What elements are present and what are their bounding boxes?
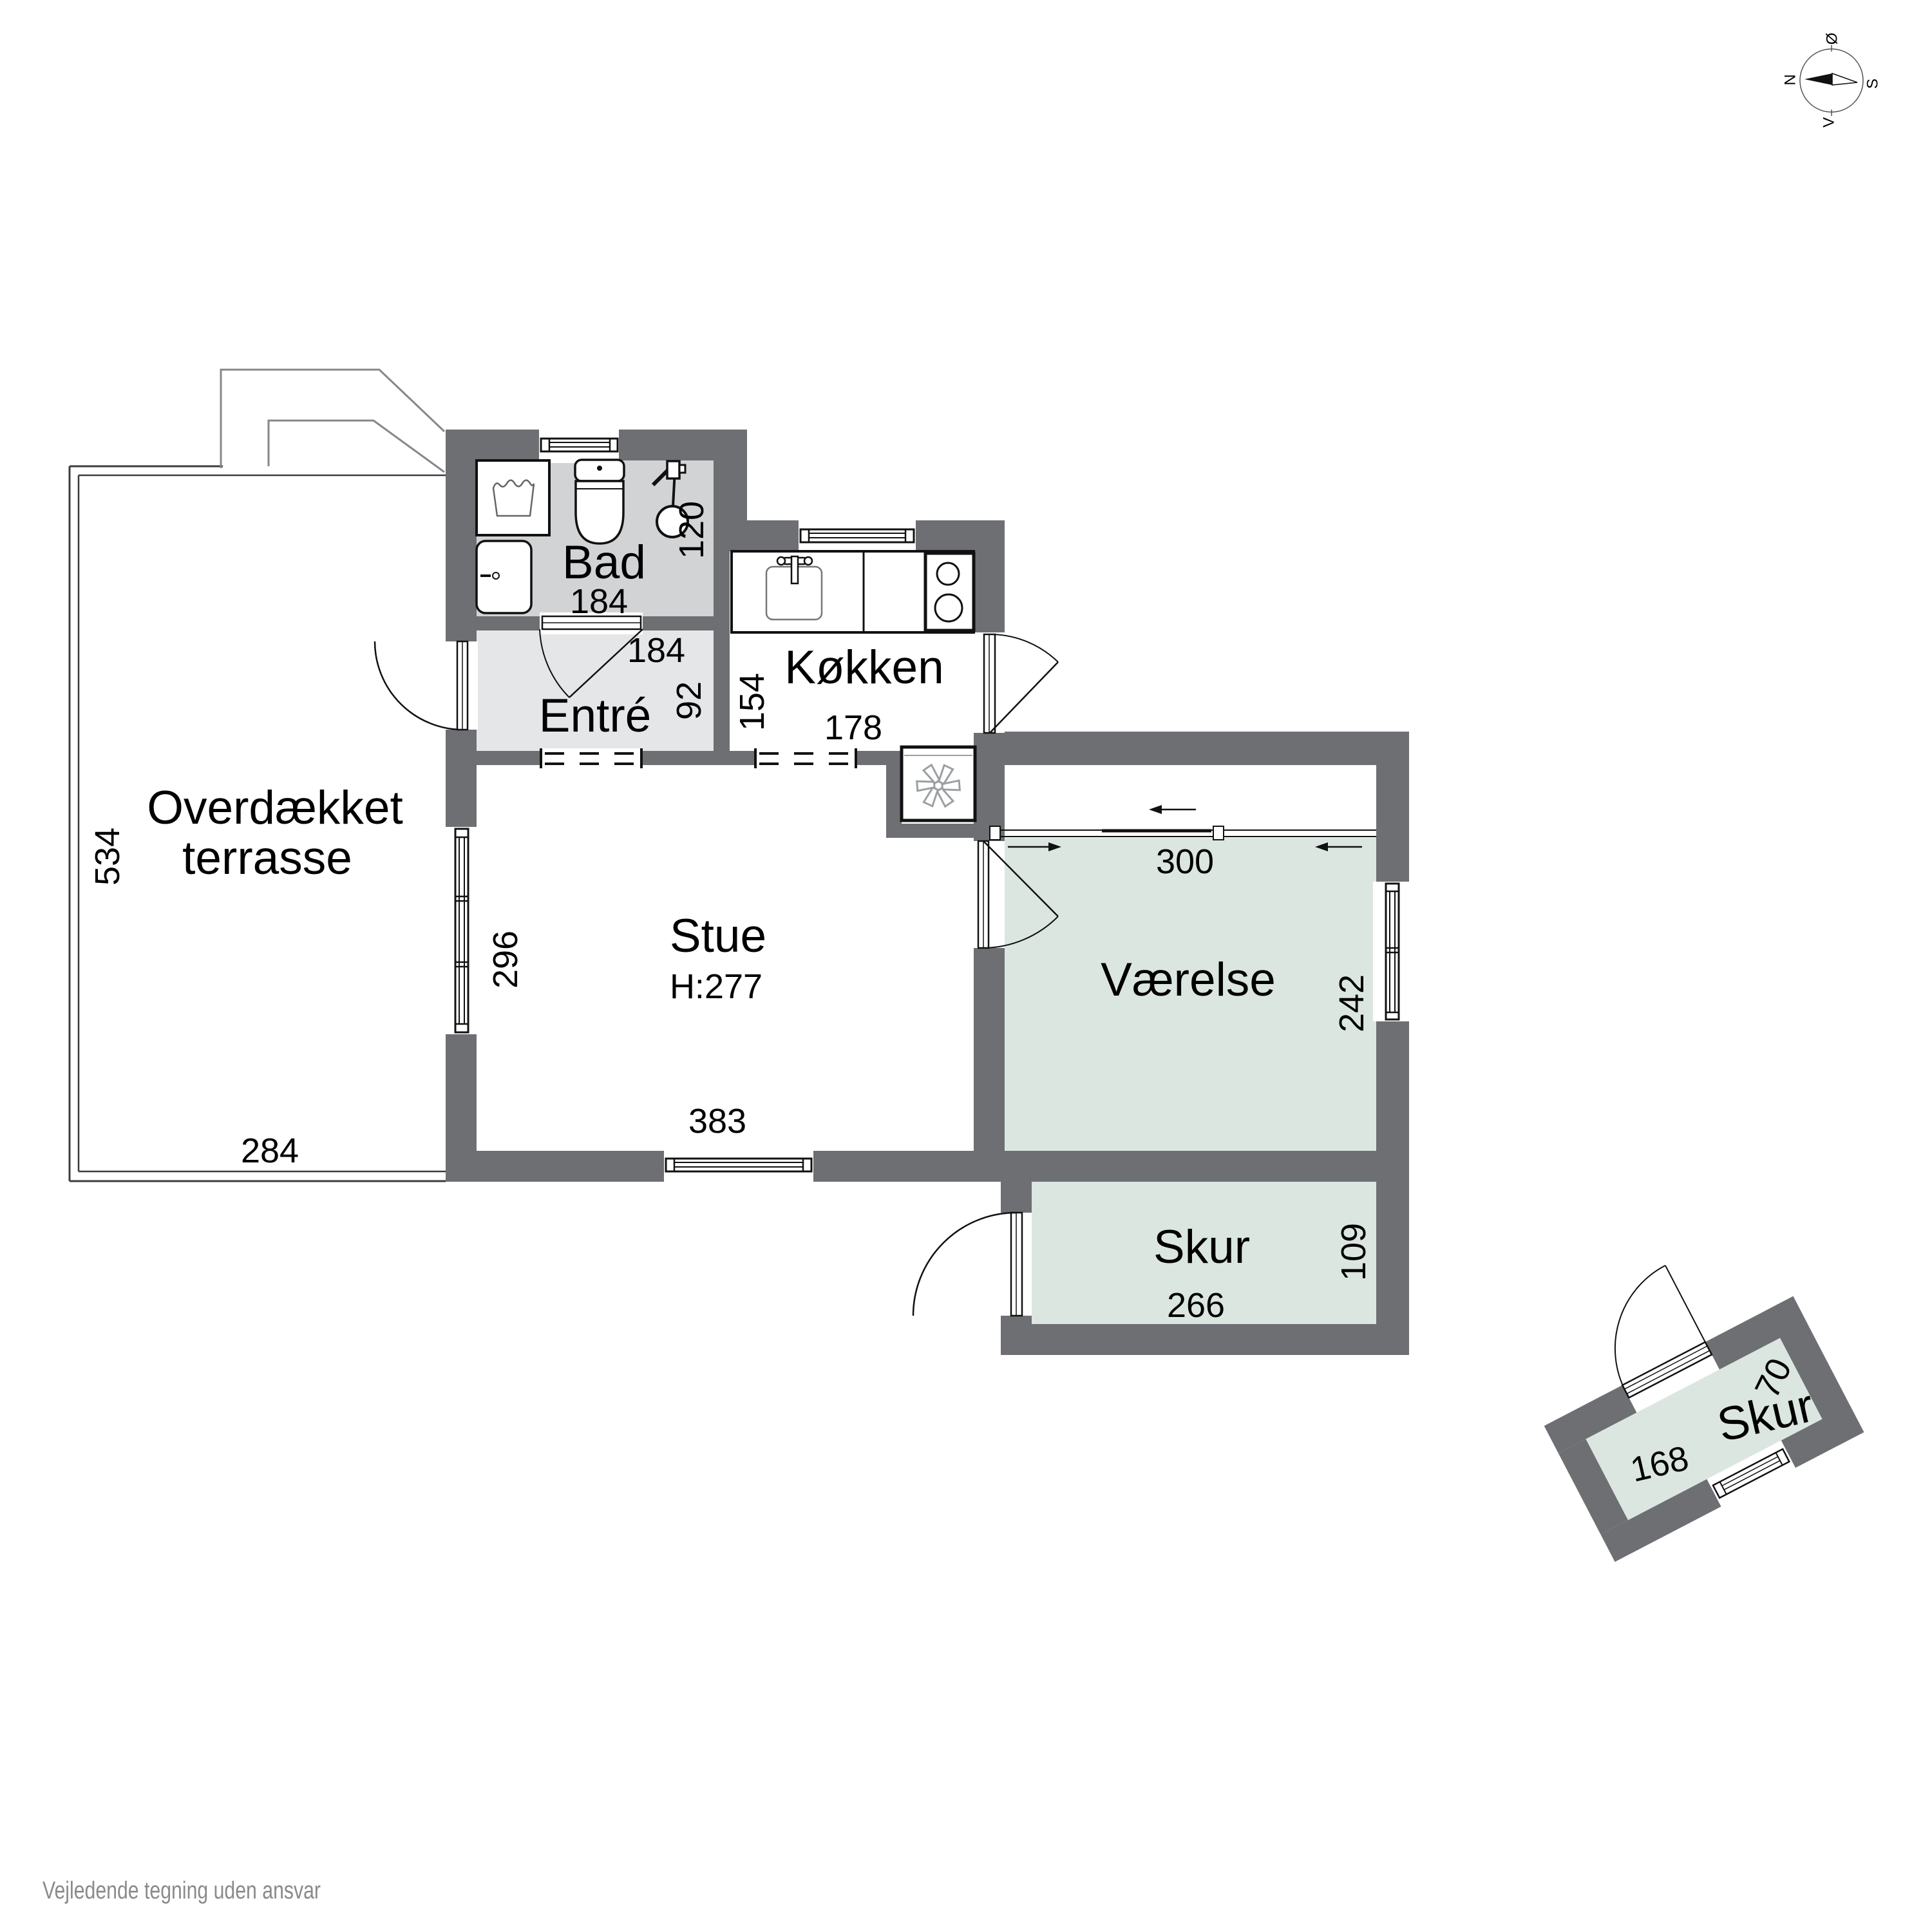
svg-text:terrasse: terrasse <box>182 832 352 884</box>
svg-text:Værelse: Værelse <box>1101 954 1276 1006</box>
svg-text:Stue: Stue <box>670 910 766 962</box>
svg-text:284: 284 <box>241 1132 299 1170</box>
svg-text:92: 92 <box>670 681 708 720</box>
svg-text:Køkken: Køkken <box>784 641 943 694</box>
svg-text:Vejledende tegning uden ansvar: Vejledende tegning uden ansvar <box>43 1877 321 1904</box>
svg-text:154: 154 <box>733 673 772 731</box>
svg-text:Ø: Ø <box>1823 33 1841 45</box>
svg-text:H:277: H:277 <box>670 967 762 1006</box>
svg-text:296: 296 <box>486 931 525 989</box>
svg-text:Bad: Bad <box>562 536 646 589</box>
svg-text:266: 266 <box>1167 1286 1225 1325</box>
svg-text:383: 383 <box>688 1102 746 1141</box>
svg-text:N: N <box>1781 74 1799 85</box>
svg-text:120: 120 <box>672 501 711 559</box>
svg-text:242: 242 <box>1332 974 1371 1032</box>
svg-text:V: V <box>1820 117 1837 128</box>
svg-text:S: S <box>1864 79 1881 89</box>
svg-text:Entré: Entré <box>539 690 651 742</box>
svg-text:184: 184 <box>570 582 628 621</box>
svg-text:300: 300 <box>1156 842 1214 881</box>
svg-text:Skur: Skur <box>1153 1221 1250 1273</box>
svg-text:109: 109 <box>1334 1223 1373 1281</box>
svg-text:Overdækket: Overdækket <box>147 782 403 834</box>
svg-text:184: 184 <box>627 631 685 670</box>
svg-text:178: 178 <box>824 708 882 747</box>
svg-text:534: 534 <box>88 828 127 885</box>
